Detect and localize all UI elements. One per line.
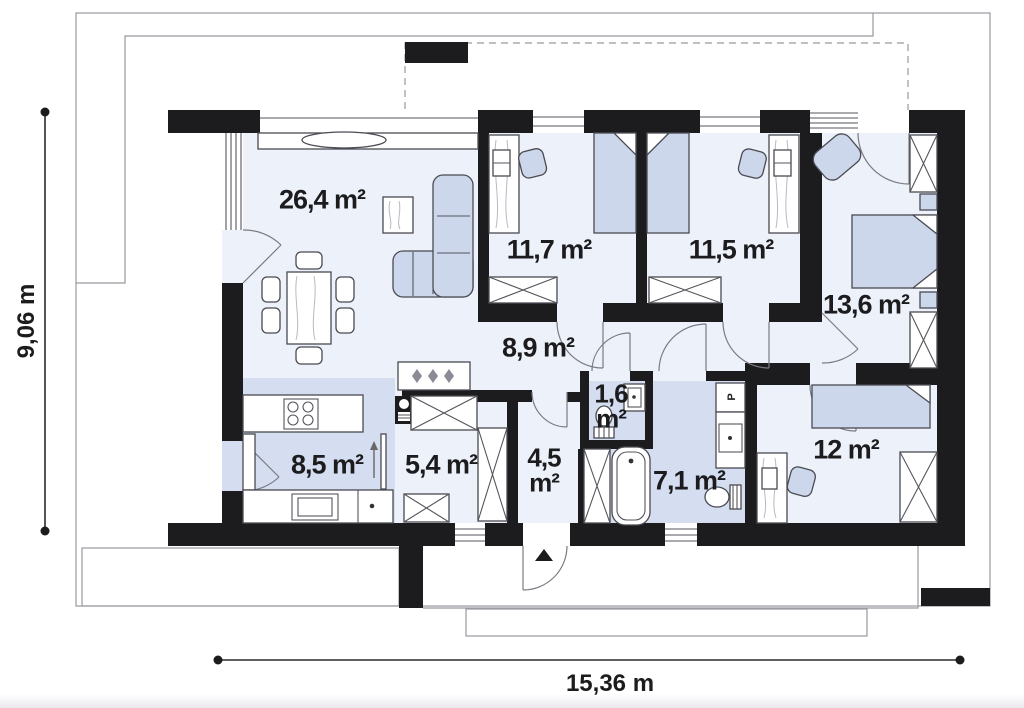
kitchen-counter-bottom: [243, 490, 393, 523]
bath-cabinet: [584, 449, 610, 523]
room-label-kitchen: 8,5 m²: [291, 452, 363, 479]
corner-glazing: [222, 133, 243, 230]
coat-rack: [398, 362, 470, 390]
washing-machine-label: P: [726, 393, 738, 400]
double-bed: [812, 385, 930, 428]
oven-dial: [399, 399, 409, 409]
single-bed: [647, 133, 689, 233]
dimension-height-label: 9,06 m: [13, 284, 41, 359]
wardrobe: [404, 494, 449, 522]
fridge: [243, 434, 255, 490]
site-corner-block: [921, 588, 990, 606]
room-label-storage: 5,4 m²: [405, 452, 477, 479]
night-stand: [920, 292, 937, 308]
wardrobe: [910, 312, 937, 368]
hallway-furniture: [398, 362, 470, 390]
room-label-bedroom-3: 13,6 m²: [823, 292, 909, 319]
room-label-entry: 4,5 m²: [527, 445, 560, 494]
bath-counter: [716, 412, 745, 468]
dining-chair: [296, 347, 322, 364]
wardrobe: [649, 277, 721, 303]
washing-machine: P: [716, 383, 745, 412]
hanger-icon: [412, 369, 454, 383]
desk: [489, 135, 519, 233]
desk: [757, 453, 787, 523]
wardrobe: [411, 396, 477, 430]
room-label-bedroom-4: 12 m²: [813, 437, 879, 464]
dining-chair: [262, 308, 280, 333]
desk: [769, 135, 799, 233]
terrace-outline: [405, 43, 908, 113]
night-stand: [920, 194, 937, 210]
chimney-block: [405, 42, 468, 63]
entrance-arrow-icon: [535, 549, 553, 561]
room-label-wc: 1,6 m²: [594, 381, 627, 430]
wardrobe: [900, 452, 937, 522]
kitchen-counter-top: [243, 395, 363, 432]
wardrobe: [489, 277, 557, 303]
side-table: [383, 197, 413, 233]
oven-grill: [398, 412, 410, 421]
laptop: [762, 468, 777, 489]
dining-chair: [336, 277, 354, 302]
double-bed: [852, 215, 937, 288]
dining-chair: [296, 252, 322, 269]
room-label-hallway: 8,9 m²: [502, 335, 574, 362]
bathtub: [612, 447, 650, 525]
room-label-living: 26,4 m²: [279, 187, 365, 214]
page-bottom-fade: [0, 694, 1024, 708]
wardrobe: [910, 135, 937, 192]
wardrobe: [478, 428, 507, 521]
room-label-bedroom-1: 11,7 m²: [507, 237, 592, 264]
living-window: [260, 110, 478, 133]
window-sill-shelf: [302, 132, 386, 148]
single-bed: [594, 133, 636, 233]
room-label-bedroom-2: 11,5 m²: [689, 237, 774, 264]
floor-plan-canvas: P: [0, 0, 1024, 708]
dining-chair: [262, 277, 280, 302]
room-label-bathroom: 7,1 m²: [653, 468, 725, 495]
dining-chair: [336, 308, 354, 333]
